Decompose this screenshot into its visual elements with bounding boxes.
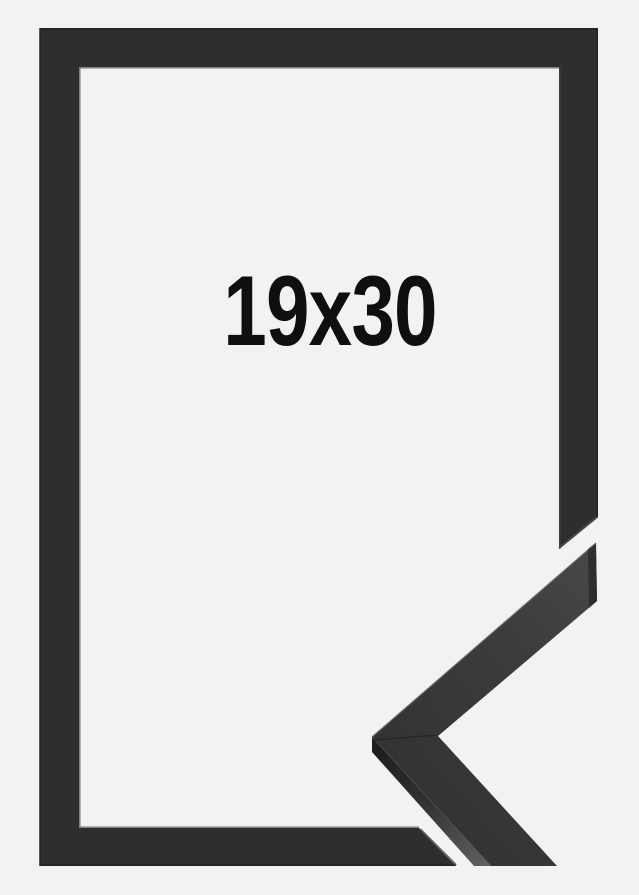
size-label-text: 19x30	[223, 261, 437, 360]
sample-end-face	[588, 543, 597, 608]
sample-top-face	[372, 543, 597, 866]
frame-outer-edge	[40, 28, 598, 865]
size-label: 19x30	[195, 261, 465, 360]
frame-border	[40, 28, 598, 866]
frame-illustration	[0, 0, 639, 895]
sample-top-highlight	[372, 543, 596, 737]
frame-inner-lip	[80, 67, 560, 827]
product-photo: 19x30	[0, 0, 639, 895]
frame-corner-sample	[372, 543, 597, 866]
